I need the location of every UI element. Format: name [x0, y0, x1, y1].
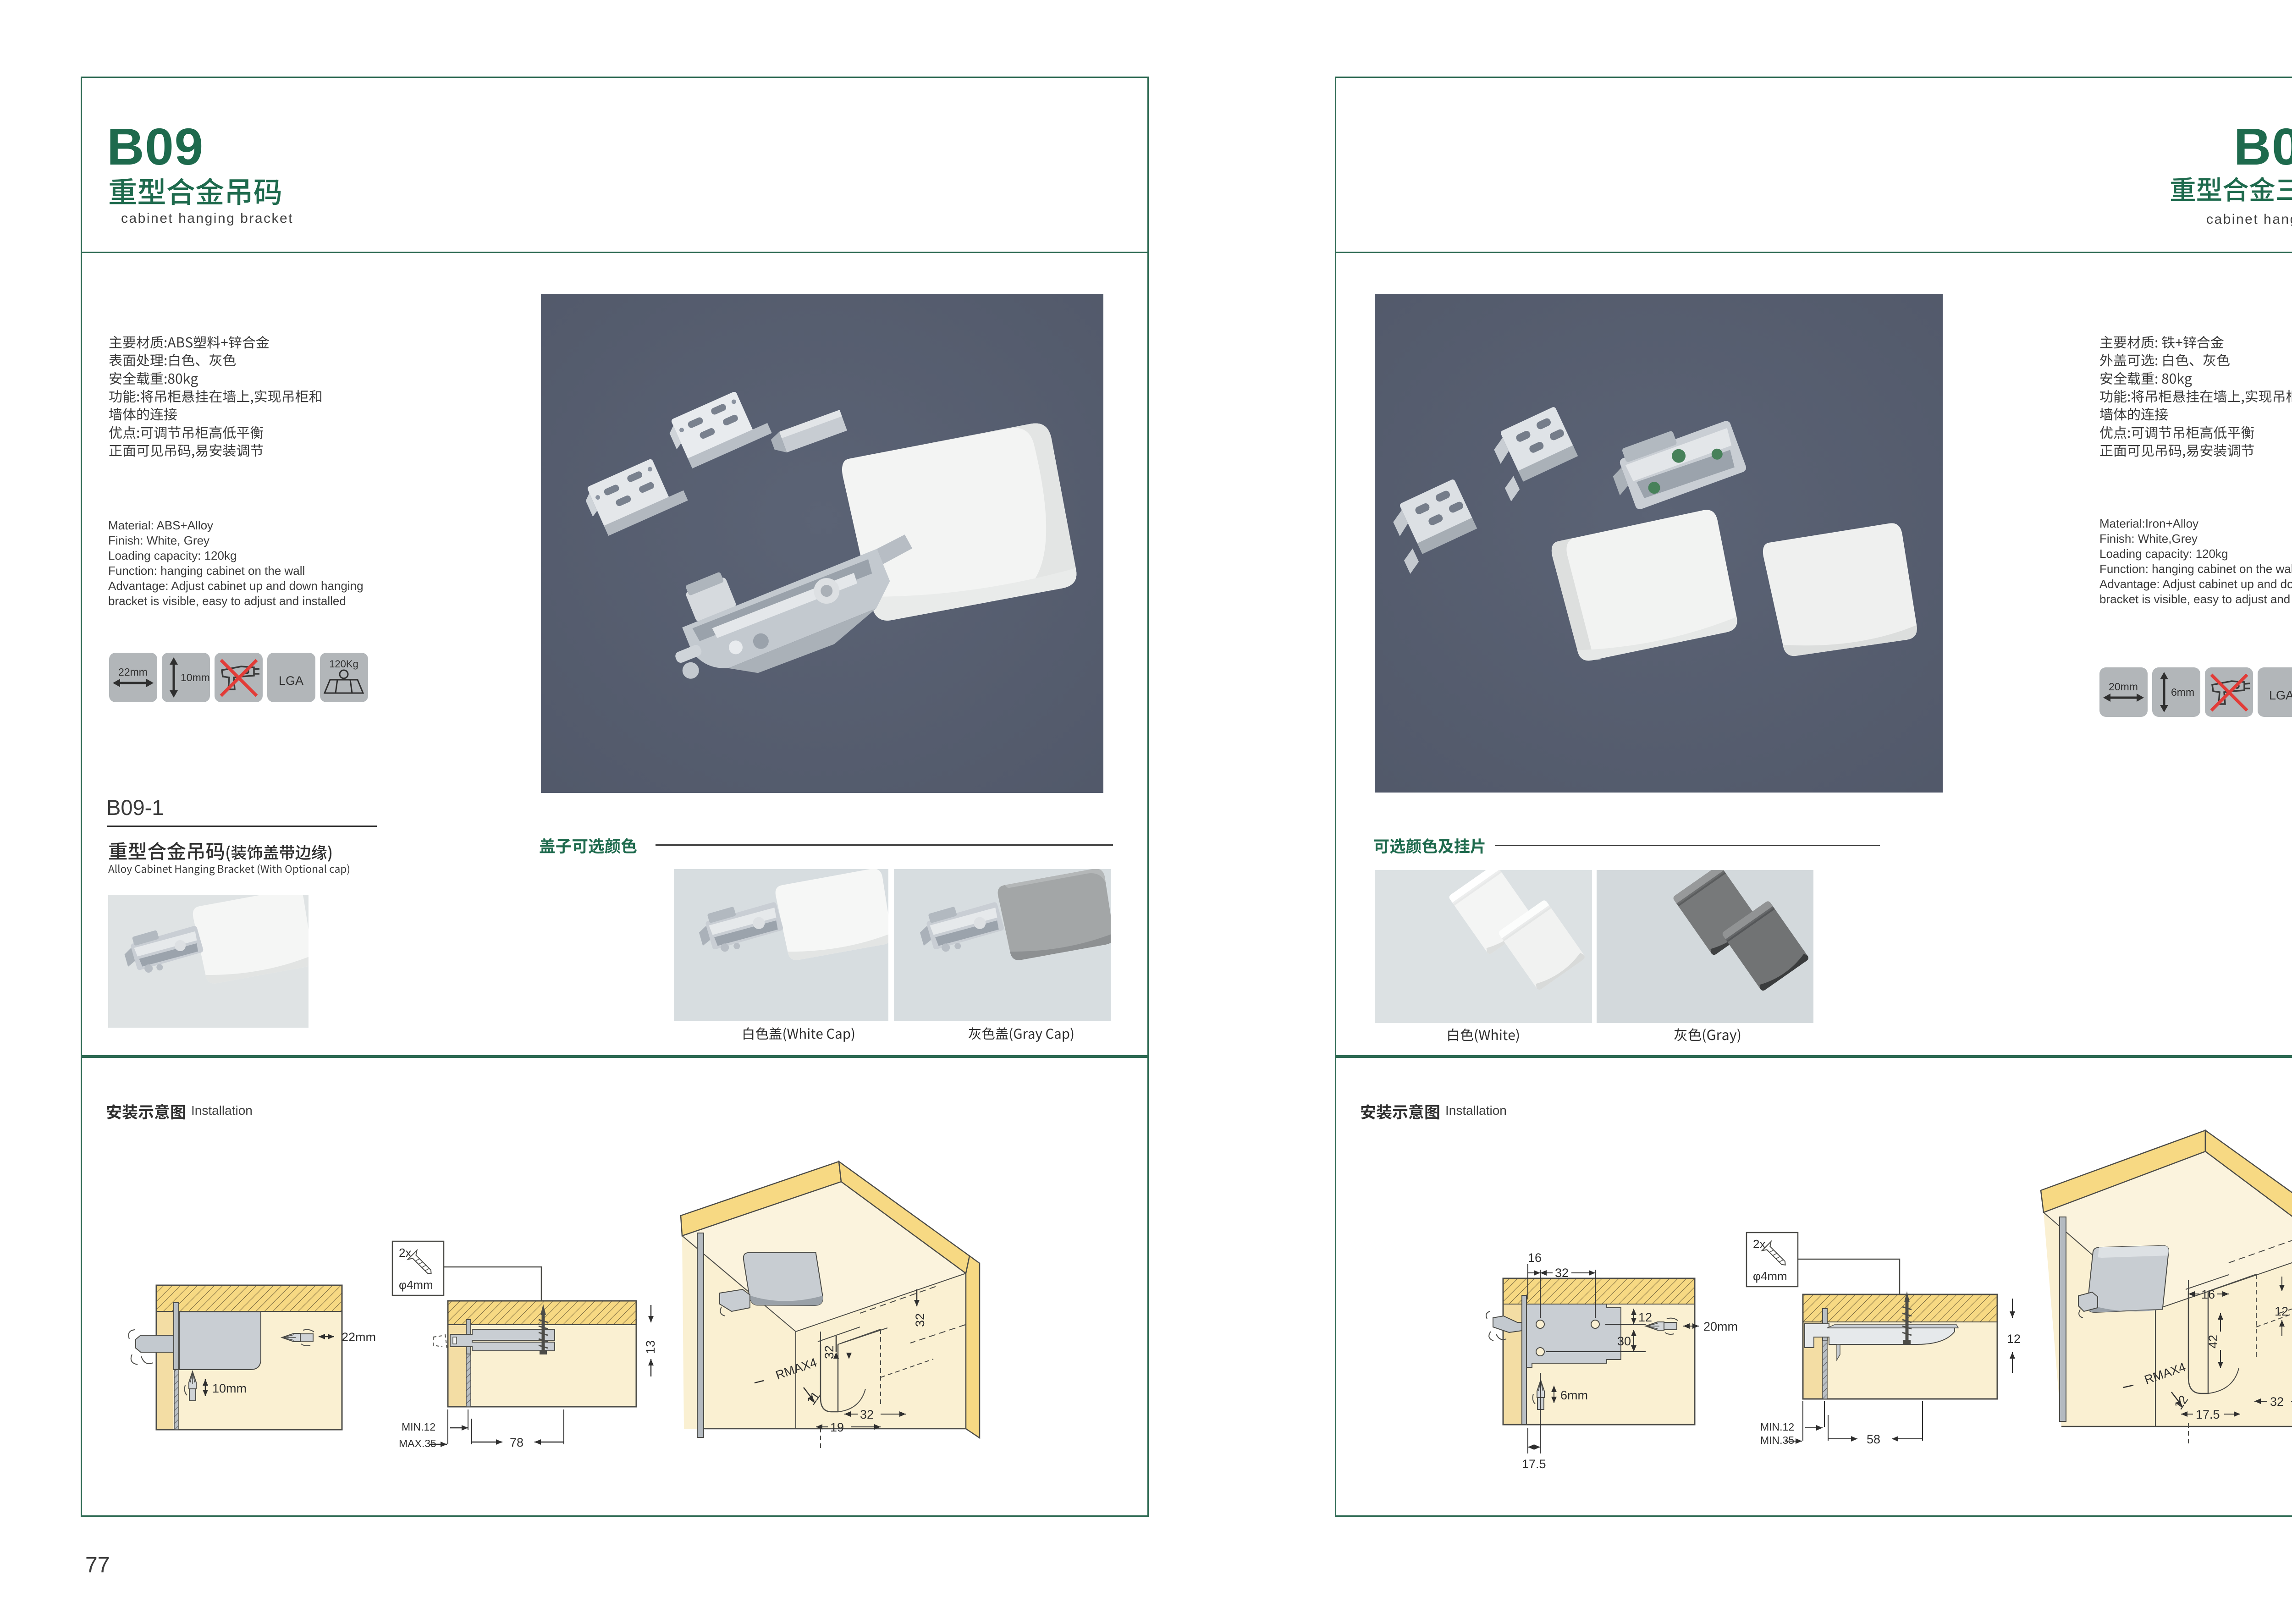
svg-text:19: 19 [830, 1420, 844, 1434]
svg-text:32: 32 [822, 1345, 836, 1359]
svg-text:17.5: 17.5 [2196, 1408, 2220, 1421]
svg-text:16: 16 [2201, 1288, 2215, 1301]
svg-text:LGA: LGA [279, 674, 303, 688]
svg-text:12: 12 [2275, 1305, 2288, 1318]
svg-text:32: 32 [860, 1408, 874, 1421]
svg-text:120Kg: 120Kg [329, 658, 358, 670]
svg-text:10mm: 10mm [181, 672, 210, 683]
svg-text:6mm: 6mm [2171, 686, 2194, 698]
svg-text:42: 42 [2206, 1335, 2220, 1349]
svg-text:20mm: 20mm [2109, 681, 2138, 693]
svg-text:32: 32 [913, 1313, 927, 1327]
svg-text:32: 32 [2270, 1395, 2284, 1409]
svg-text:22mm: 22mm [118, 666, 148, 678]
svg-text:LGA: LGA [2269, 688, 2292, 702]
